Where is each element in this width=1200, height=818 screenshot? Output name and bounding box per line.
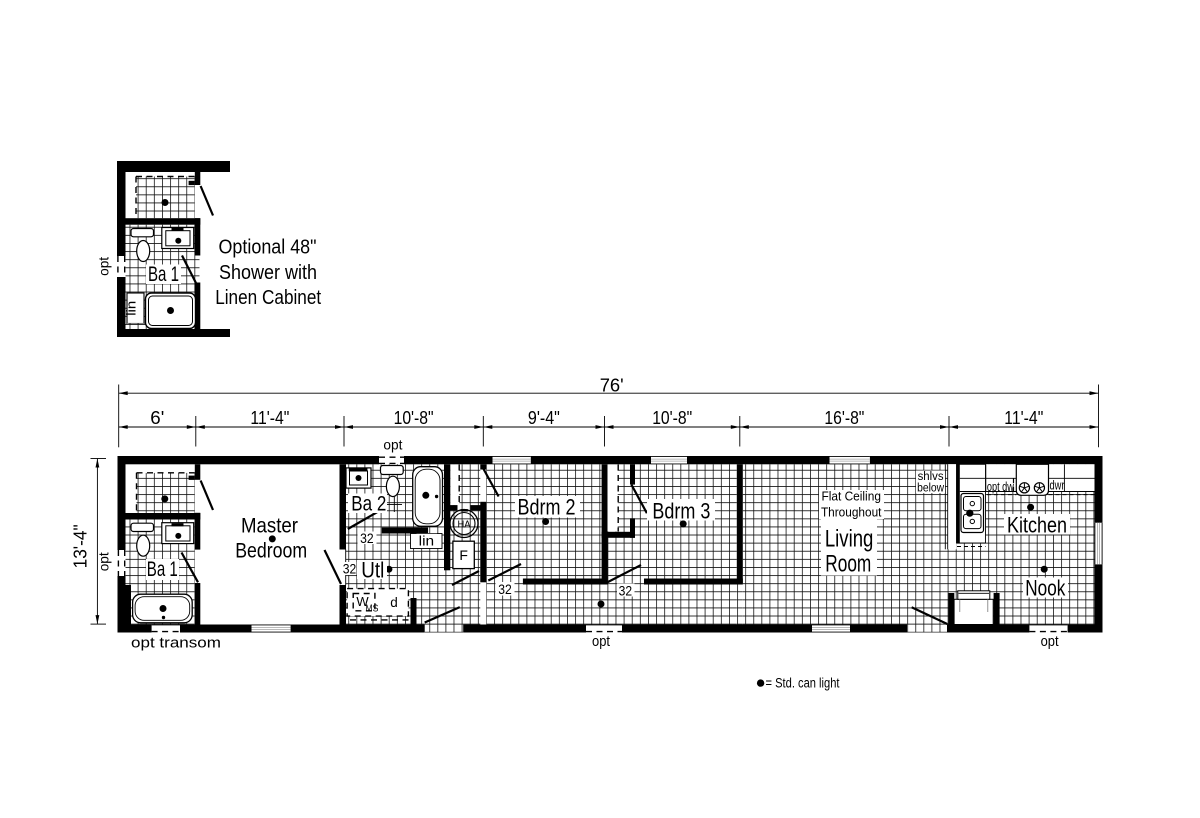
svg-text:lin: lin (123, 301, 138, 316)
svg-text:dwr: dwr (1050, 479, 1065, 493)
svg-text:MS: MS (365, 604, 378, 615)
svg-text:Throughout: Throughout (821, 505, 882, 519)
svg-text:Ba 1: Ba 1 (147, 558, 178, 581)
svg-text:Nook: Nook (1025, 576, 1066, 601)
svg-text:opt: opt (383, 437, 402, 453)
svg-text:Kitchen: Kitchen (1007, 513, 1067, 538)
svg-text:Room: Room (825, 551, 871, 578)
svg-text:opt: opt (96, 552, 112, 571)
svg-text:32: 32 (498, 581, 512, 597)
svg-text:76': 76' (600, 375, 624, 396)
svg-text:6': 6' (150, 407, 164, 428)
svg-text:Flat Ceiling: Flat Ceiling (821, 489, 881, 503)
svg-text:Ba 2: Ba 2 (351, 493, 386, 516)
svg-text:13'-4": 13'-4" (70, 524, 91, 568)
svg-text:below: below (917, 483, 945, 495)
svg-text:16'-8": 16'-8" (824, 407, 864, 428)
svg-text:32: 32 (343, 561, 357, 577)
svg-text:Master: Master (241, 514, 298, 537)
svg-text:Bedroom: Bedroom (235, 540, 307, 563)
svg-text:11'-4": 11'-4" (1004, 407, 1043, 428)
svg-text:10'-8": 10'-8" (394, 407, 434, 428)
svg-text:opt: opt (96, 257, 112, 276)
svg-text:F: F (459, 547, 468, 563)
svg-text:HA: HA (458, 519, 471, 531)
svg-text:Bdrm 2: Bdrm 2 (518, 495, 576, 520)
svg-text:11'-4": 11'-4" (250, 407, 289, 428)
svg-text:Optional 48": Optional 48" (219, 236, 317, 259)
svg-text:9'-4": 9'-4" (528, 407, 560, 428)
svg-text:opt: opt (592, 634, 610, 650)
svg-text:= Std. can light: = Std. can light (766, 676, 840, 691)
svg-text:Utl: Utl (361, 558, 384, 583)
svg-text:shlvs: shlvs (918, 471, 944, 483)
svg-text:opt transom: opt transom (131, 636, 221, 652)
svg-text:32: 32 (360, 530, 374, 546)
svg-text:d: d (390, 595, 398, 610)
svg-text:opt: opt (1041, 634, 1059, 650)
svg-text:Ba 1: Ba 1 (148, 263, 179, 286)
svg-text:Living: Living (825, 526, 874, 553)
svg-text:opt dw: opt dw (987, 479, 1014, 494)
svg-text:Shower with: Shower with (219, 261, 317, 284)
svg-text:10'-8": 10'-8" (652, 407, 692, 428)
svg-text:Bdrm 3: Bdrm 3 (652, 498, 710, 523)
svg-text:32: 32 (619, 582, 633, 598)
svg-text:Linen Cabinet: Linen Cabinet (215, 286, 321, 309)
svg-text:lin: lin (419, 532, 435, 548)
